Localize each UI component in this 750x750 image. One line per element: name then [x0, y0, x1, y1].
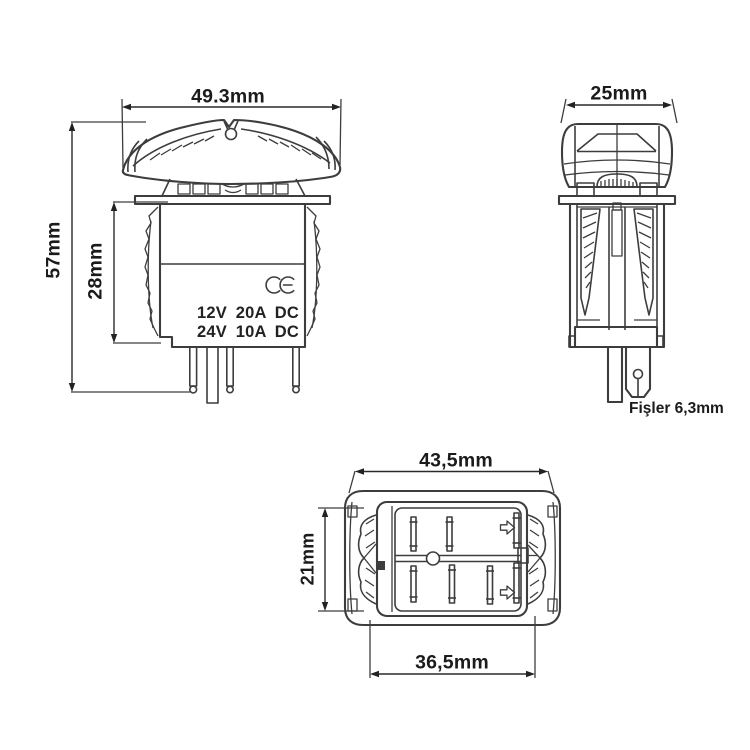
- technical-drawing-canvas: [0, 0, 750, 750]
- rocker-cap-front: [123, 120, 340, 196]
- front-height-dimension-label: 57mm: [43, 221, 66, 278]
- bottom-view-drawing: [318, 468, 560, 678]
- switch-body-side: [569, 203, 664, 347]
- front-width-dimension-label: 49.3mm: [191, 86, 265, 109]
- rating-line-1: 12V 20A DC: [197, 304, 299, 323]
- side-view-drawing: [559, 99, 677, 402]
- rating-line-2: 24V 10A DC: [197, 323, 299, 342]
- cutout-height-dimension-label: 21mm: [298, 533, 319, 586]
- electrical-ratings: 12V 20A DC 24V 10A DC: [197, 304, 299, 341]
- front-flange: [135, 196, 330, 204]
- switch-body-bottom: [359, 502, 546, 616]
- right-arrow-icon: [501, 521, 515, 534]
- cutout-height-dimension-lines: [318, 508, 364, 611]
- rocker-cap-side: [562, 124, 672, 196]
- terminal-size-note: Fişler 6,3mm: [629, 400, 724, 418]
- terminal-pins-front: [190, 347, 299, 403]
- terminal-blades-side: [608, 347, 650, 402]
- cutout-width-dimension-label: 43,5mm: [419, 450, 493, 473]
- front-body-height-dimension-label: 28mm: [85, 242, 108, 299]
- ce-mark-icon: [266, 277, 294, 293]
- front-view-drawing: [69, 99, 341, 403]
- side-width-dimension-label: 25mm: [590, 83, 647, 106]
- right-arrow-icon: [501, 586, 515, 599]
- front-width-dimension-lines: [122, 99, 341, 168]
- rocker-switch-dimension-drawing: 49.3mm 57mm 28mm 25mm Fişler 6,3mm 43,5m…: [0, 0, 750, 750]
- cutout-inner-width-dimension-label: 36,5mm: [415, 652, 489, 675]
